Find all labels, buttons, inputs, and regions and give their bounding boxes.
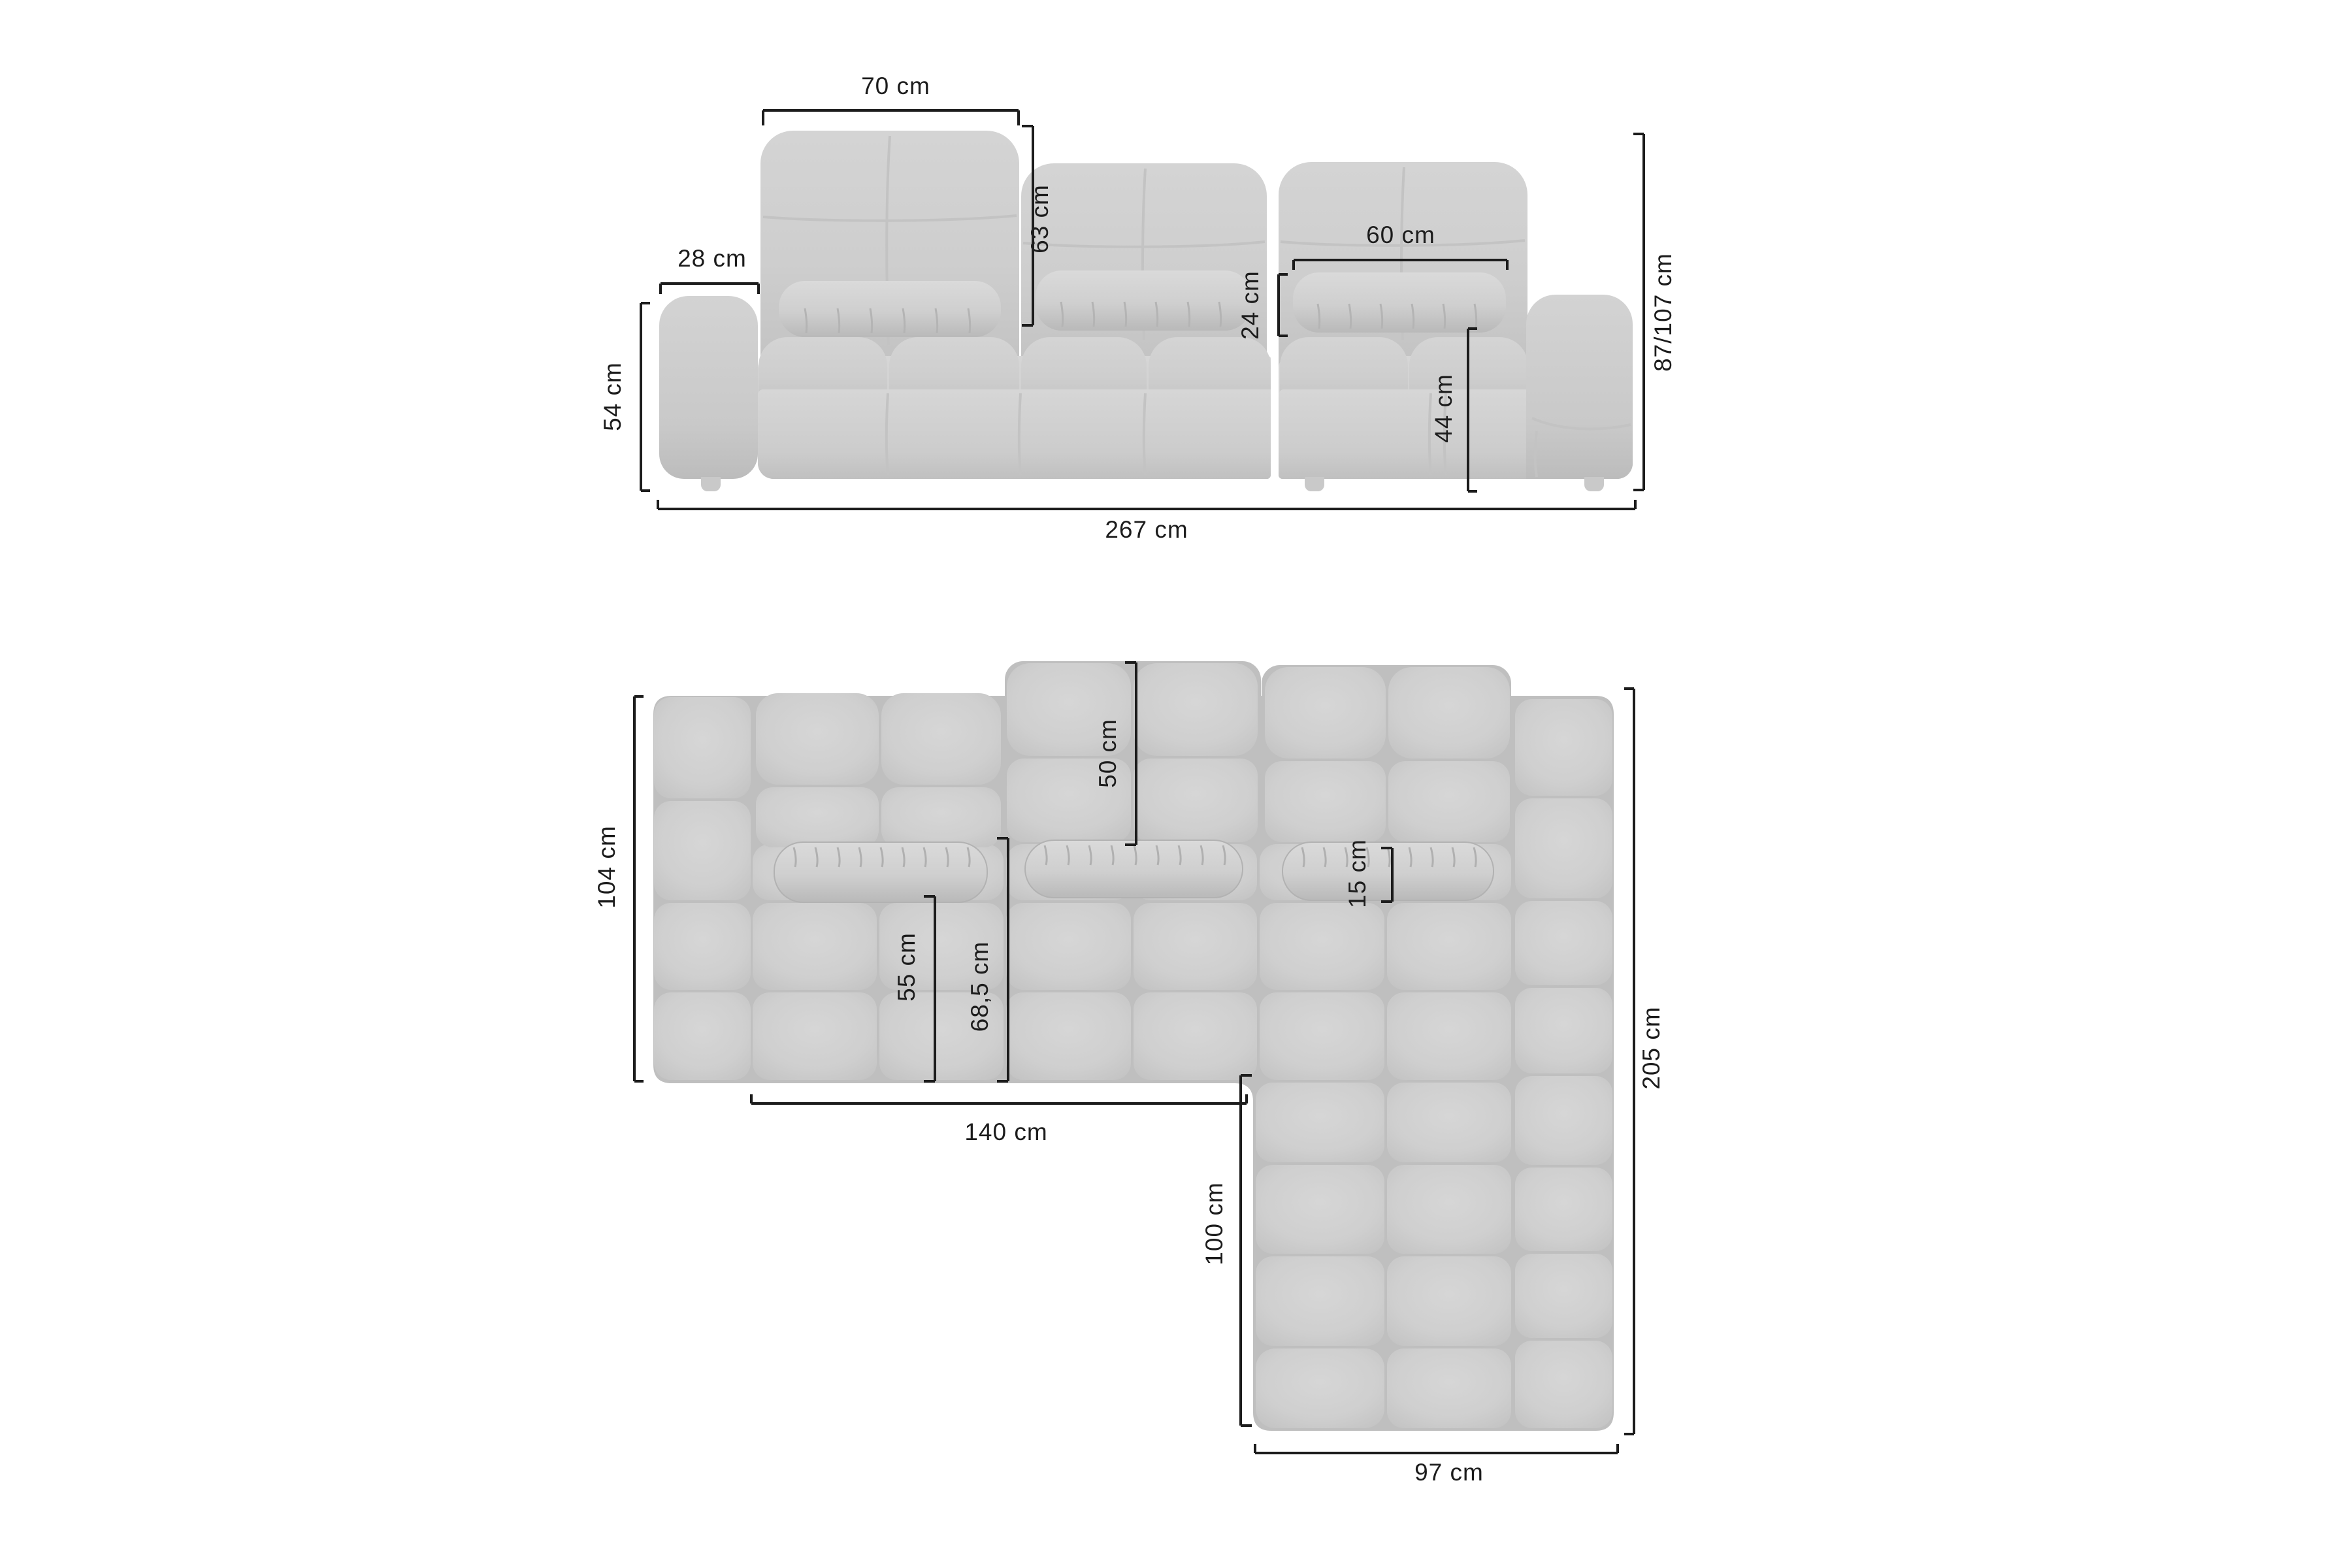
svg-text:60 cm: 60 cm — [1366, 221, 1435, 248]
svg-text:15 cm: 15 cm — [1344, 839, 1371, 908]
svg-text:63 cm: 63 cm — [1026, 184, 1053, 253]
svg-text:97 cm: 97 cm — [1414, 1459, 1484, 1486]
svg-text:28 cm: 28 cm — [678, 245, 747, 272]
svg-text:205 cm: 205 cm — [1638, 1006, 1665, 1089]
svg-text:267 cm: 267 cm — [1105, 516, 1188, 543]
svg-text:54 cm: 54 cm — [599, 362, 626, 431]
svg-text:50 cm: 50 cm — [1094, 719, 1121, 788]
svg-text:87/107 cm: 87/107 cm — [1650, 253, 1676, 372]
svg-text:44 cm: 44 cm — [1430, 374, 1457, 443]
svg-text:68,5 cm: 68,5 cm — [966, 941, 993, 1032]
svg-text:140 cm: 140 cm — [964, 1119, 1047, 1145]
svg-text:55 cm: 55 cm — [893, 932, 920, 1002]
svg-text:70 cm: 70 cm — [861, 73, 930, 99]
svg-text:24 cm: 24 cm — [1237, 270, 1264, 340]
svg-text:104 cm: 104 cm — [593, 825, 620, 908]
svg-text:100 cm: 100 cm — [1201, 1182, 1228, 1265]
